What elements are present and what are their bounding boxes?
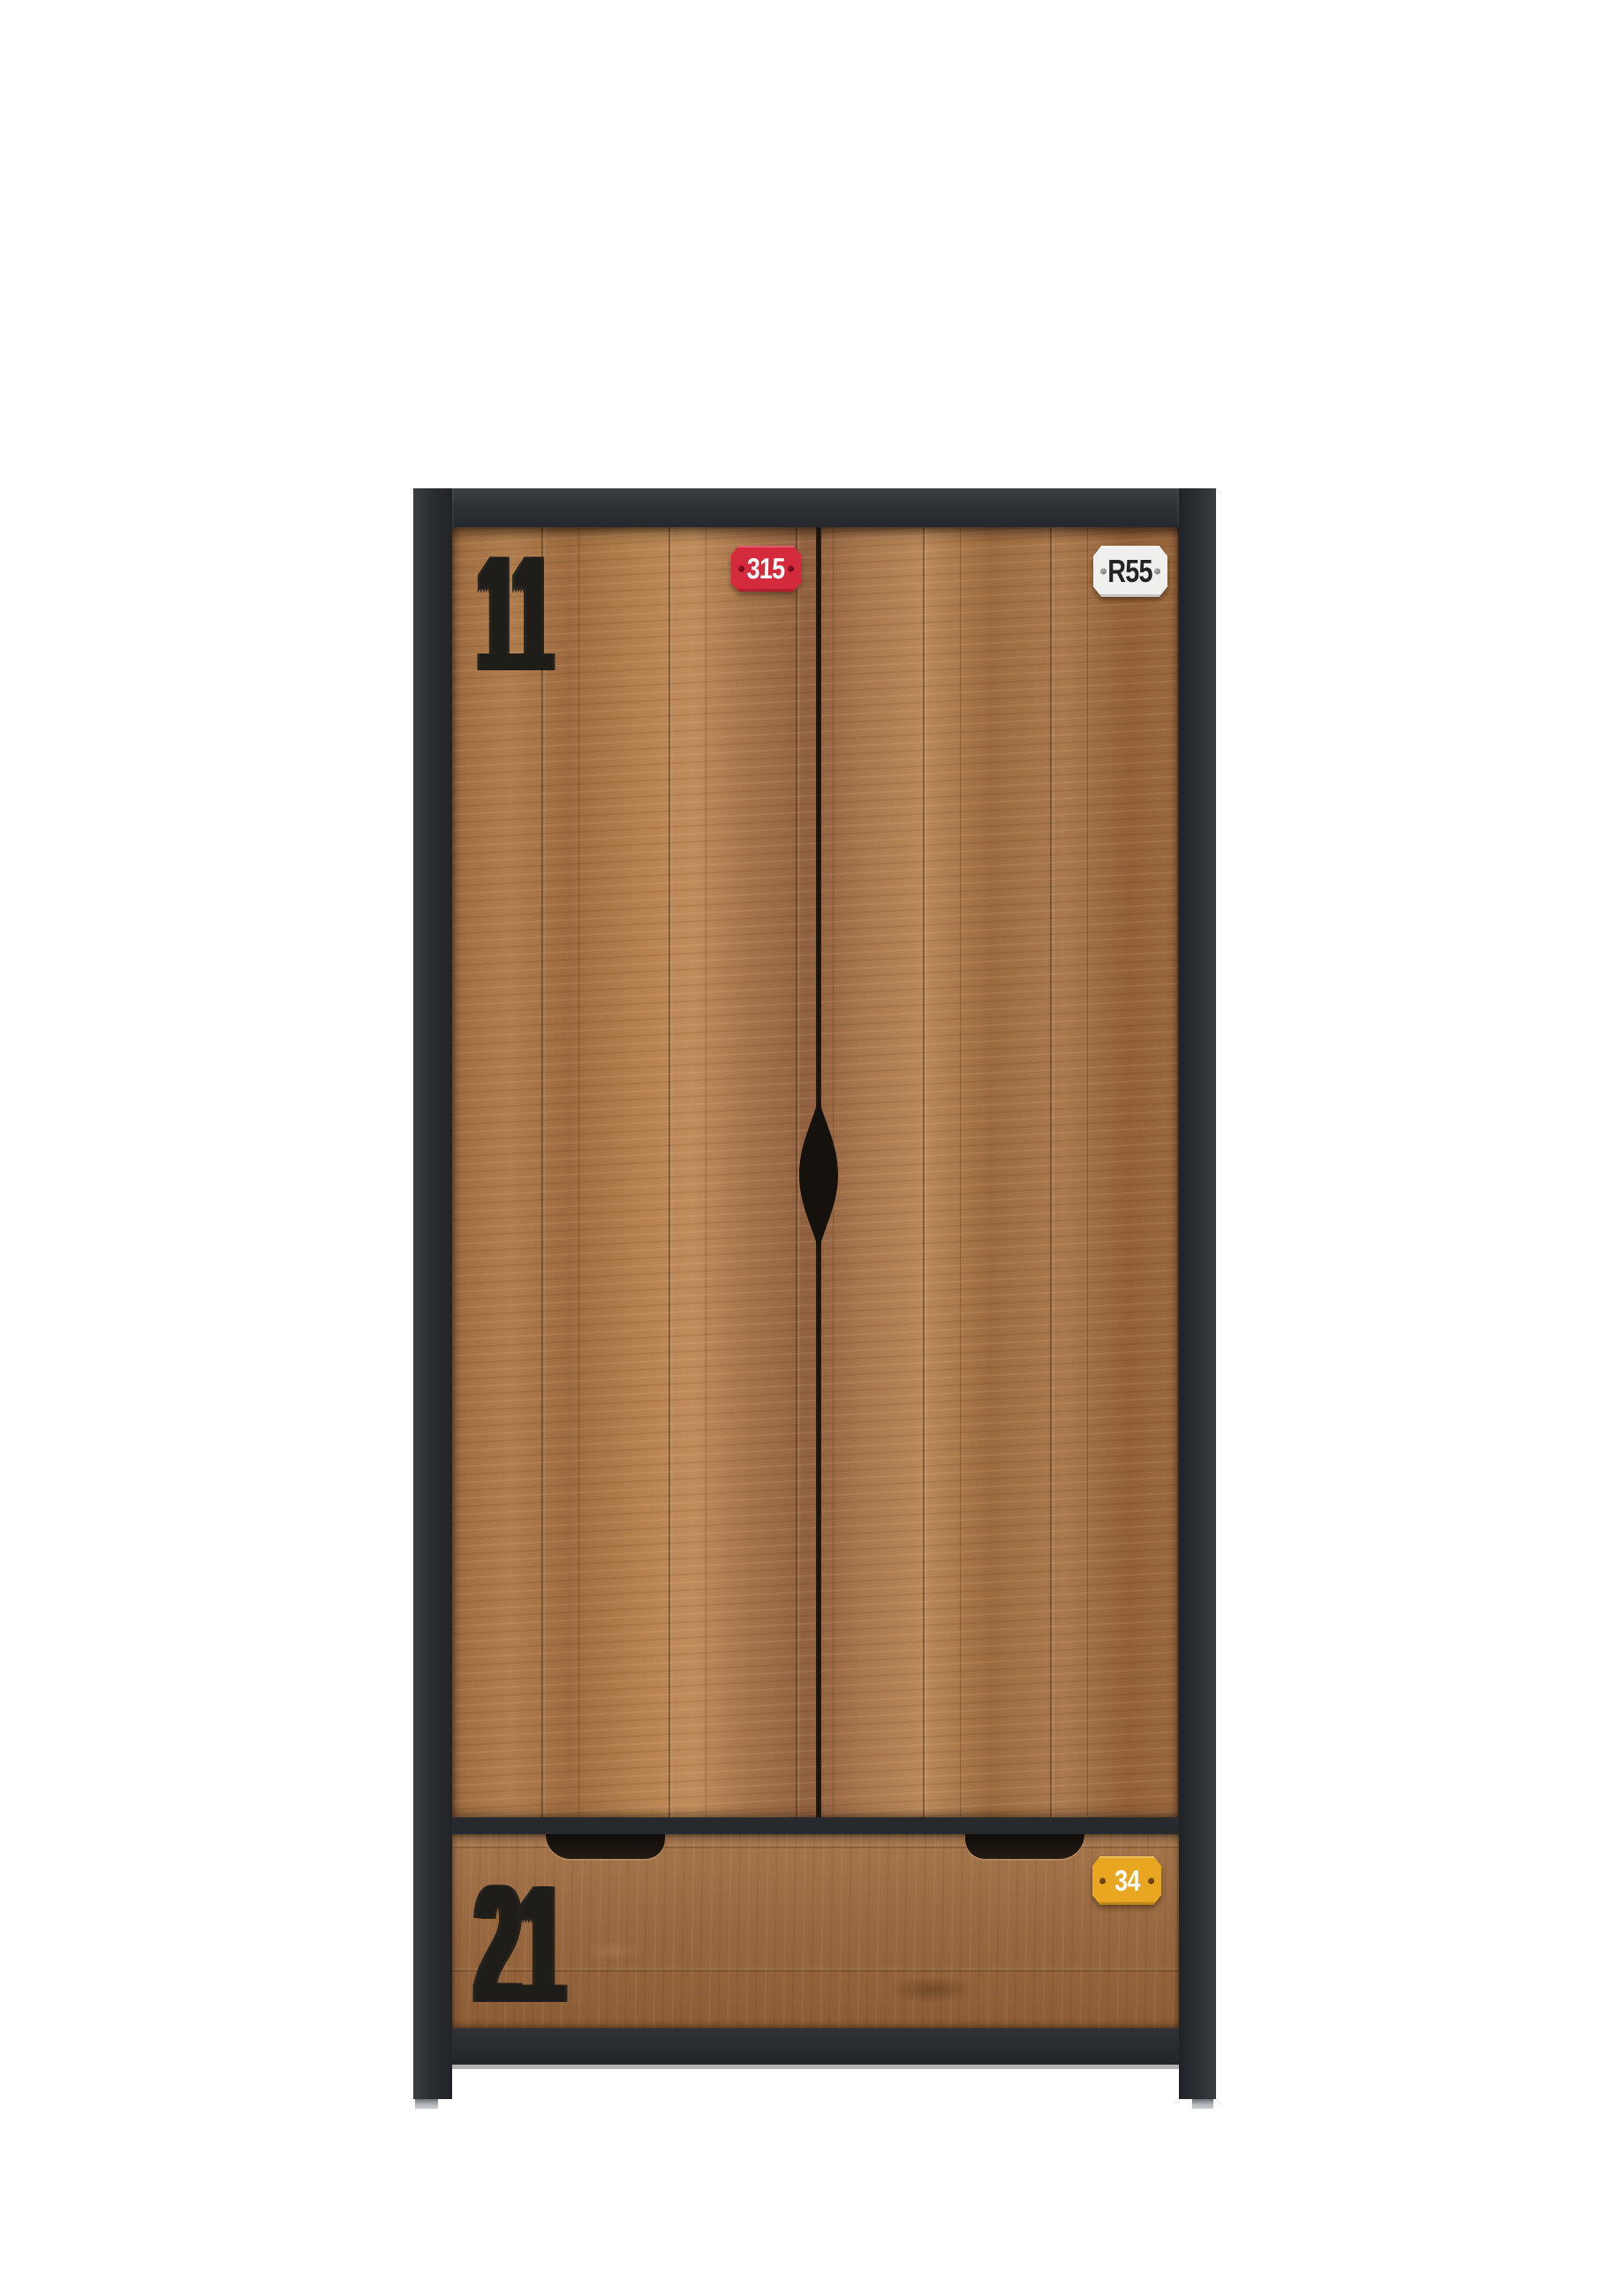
screw-icon	[1154, 569, 1160, 575]
drawer-stencil-text: 21	[476, 1861, 563, 2028]
screw-icon	[1100, 569, 1107, 575]
screw-icon	[788, 566, 794, 572]
frame-left-post	[413, 488, 452, 2099]
drawer-stencil-number: 21	[465, 1883, 575, 2006]
screw-icon	[1099, 1877, 1106, 1884]
yellow-number-badge: 34	[1092, 1856, 1161, 1905]
yellow-number-badge-plate: 34	[1092, 1856, 1161, 1905]
frame-right-post	[1179, 488, 1216, 2099]
door-stencil-number: 11	[474, 554, 555, 674]
drawer-grip-notch-left	[546, 1834, 665, 1859]
badge-label: R55	[1108, 553, 1152, 590]
badge-label: 315	[747, 552, 786, 585]
wardrobe-doors	[452, 527, 1179, 1817]
screw-icon	[738, 566, 744, 572]
red-number-badge-plate: 315	[731, 546, 801, 592]
right-foot-glide	[1192, 2099, 1213, 2109]
badge-label: 34	[1114, 1864, 1139, 1898]
drawer-grip-notch-right	[965, 1834, 1084, 1859]
door-handle-cutout	[799, 1097, 838, 1252]
red-number-badge: 315	[731, 546, 801, 592]
screw-icon	[1148, 1877, 1154, 1884]
white-number-badge: R55	[1093, 546, 1167, 597]
left-foot-glide	[415, 2099, 438, 2109]
frame-separator-band	[452, 1817, 1179, 1834]
photo-background: { "scene": { "type": "product-photo", "s…	[0, 0, 1624, 2296]
base-highlight-strip	[452, 2065, 1179, 2069]
door-stencil-text: 11	[479, 532, 552, 697]
white-number-badge-plate: R55	[1093, 546, 1167, 597]
wardrobe: 11 21 315 R55 34	[413, 488, 1216, 2109]
frame-top-bar	[452, 488, 1179, 527]
